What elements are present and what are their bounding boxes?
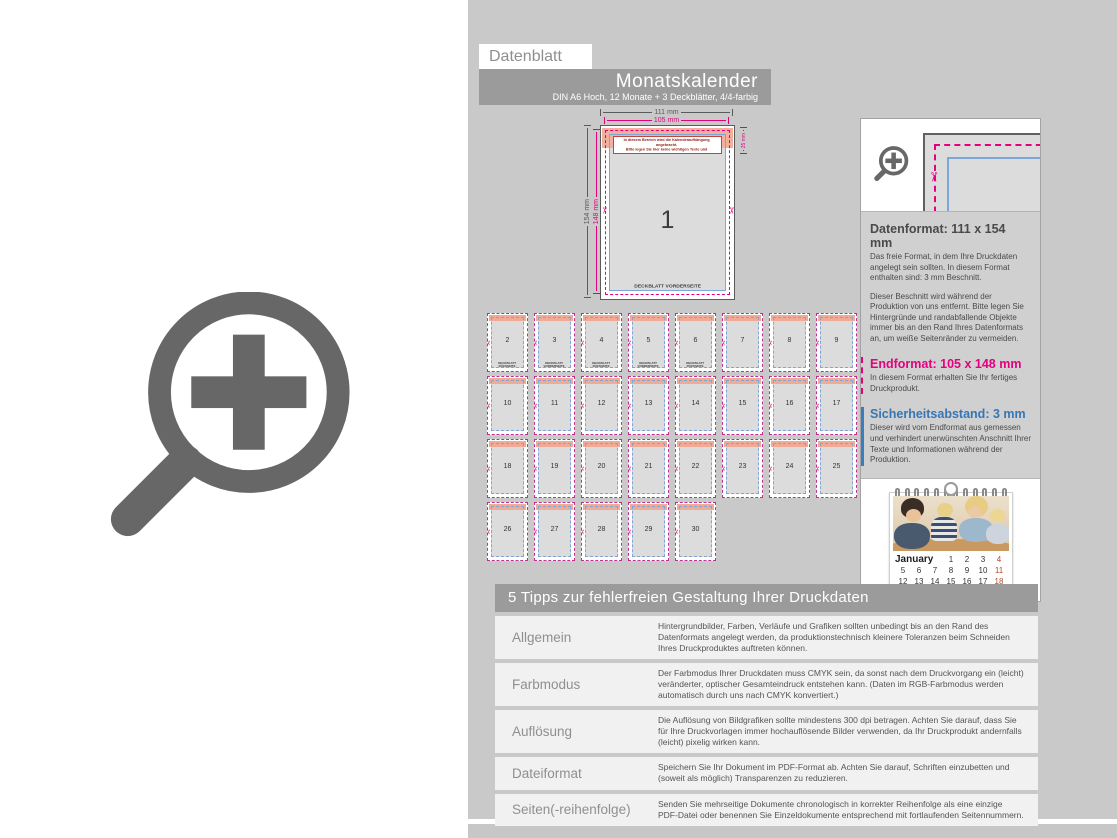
page-tile: ✂ 2 DECKBLATT RÜCKSEITE [487, 313, 528, 372]
day-cell: 8 [943, 565, 959, 576]
wire-loop [924, 488, 929, 496]
format-diagram: 111 mm 105 mm 154 mm 148 mm 25 mm ✂ ✂ In… [583, 108, 778, 308]
page-tile: ✂ 4 DECKBLATT RÜCKSEITE [581, 313, 622, 372]
page-tile: ✂ 21 [628, 439, 669, 498]
page-tile: ✂ 7 [722, 313, 763, 372]
page-tile: ✂ 26 [487, 502, 528, 561]
tip-row: Seiten(-reihenfolge) Senden Sie mehrseit… [495, 794, 1038, 826]
datenformat-section: Datenformat: 111 x 154 mm Das freie Form… [870, 222, 1031, 344]
wire-loop [973, 488, 978, 496]
day-cell: 1 [943, 554, 959, 565]
tip-label: Auflösung [495, 724, 658, 739]
day-cell: 4 [991, 554, 1007, 565]
wire-loop [895, 488, 900, 496]
endformat-section: Endformat: 105 x 148 mm In diesem Format… [861, 357, 1031, 394]
footer-bar [468, 824, 1117, 838]
product-photo-box: January123456789101112131415161718 [861, 478, 1040, 601]
wire-loop [963, 488, 968, 496]
endformat-text: In diesem Format erhalten Sie Ihr fertig… [870, 373, 1031, 394]
page-tile: ✂ 20 [581, 439, 622, 498]
day-cell: 10 [975, 565, 991, 576]
wire-loop [905, 488, 910, 496]
datasheet-page: Datenblatt Monatskalender DIN A6 Hoch, 1… [0, 0, 1117, 838]
page-number: 10 [488, 400, 527, 407]
hanger-ring [944, 482, 958, 496]
page-number: 13 [629, 400, 668, 407]
tip-row: Farbmodus Der Farbmodus Ihrer Druckdaten… [495, 663, 1038, 706]
wire-loop [1002, 488, 1007, 496]
zoomed-corner-graphic: ✂ [917, 127, 1040, 211]
tip-row: Auflösung Die Auflösung von Bildgrafiken… [495, 710, 1038, 753]
format-descriptions: Datenformat: 111 x 154 mm Das freie Form… [861, 212, 1040, 478]
tip-text: Hintergrundbilder, Farben, Verläufe und … [658, 616, 1038, 659]
page-number: 18 [488, 463, 527, 470]
day-cell: 9 [959, 565, 975, 576]
endformat-title: Endformat: 105 x 148 mm [870, 357, 1031, 371]
binding-warning-line2: Bitte legen Sie hier keine wichtigen Tex… [626, 147, 707, 154]
day-cell: 7 [927, 565, 943, 576]
page-number: 25 [817, 463, 856, 470]
binding-warning-box: In diesem Bereich wird die Kalenderaufhä… [613, 136, 722, 154]
tip-label: Farbmodus [495, 677, 658, 692]
wire-loop [914, 488, 919, 496]
page-tile: ✂ 18 [487, 439, 528, 498]
page-number: 11 [535, 400, 574, 407]
tip-label: Dateiformat [495, 766, 658, 781]
page-label: DECKBLATT RÜCKSEITE [676, 352, 715, 369]
scissors-icon: ✂ [925, 172, 941, 183]
page-tile: ✂ 28 [581, 502, 622, 561]
tip-row: Allgemein Hintergrundbilder, Farben, Ver… [495, 616, 1038, 659]
page-number: 2 [488, 337, 527, 344]
page-number: 28 [582, 526, 621, 533]
page-label: DECKBLATT VORDERSEITE [601, 281, 734, 291]
page-label: DECKBLATT VORDERSEITE [535, 352, 574, 369]
page-number: 29 [629, 526, 668, 533]
page-number: 30 [676, 526, 715, 533]
tip-text: Die Auflösung von Bildgrafiken sollte mi… [658, 710, 1038, 753]
page-label: DECKBLATT RÜCKSEITE [488, 352, 527, 369]
datenformat-text2: Dieser Beschnitt wird während der Produk… [870, 292, 1031, 345]
datenblatt-tab: Datenblatt [479, 44, 592, 69]
page-number: 1 [601, 206, 734, 235]
day-cell: 2 [959, 554, 975, 565]
calendar-dates: January123456789101112131415161718 [895, 554, 1007, 587]
page-tile: ✂ 13 [628, 376, 669, 435]
calendar-week-row: January1234 [895, 554, 1007, 565]
page-tile: ✂ 24 [769, 439, 810, 498]
page-number: 16 [770, 400, 809, 407]
safety-edge [947, 157, 1040, 211]
corner-detail-box: ✂ [861, 119, 1040, 212]
page-number: 15 [723, 400, 762, 407]
tips-rows: Allgemein Hintergrundbilder, Farben, Ver… [495, 616, 1038, 826]
page-tile: ✂ 8 [769, 313, 810, 372]
page-label: DECKBLATT VORDERSEITE [629, 352, 668, 369]
day-cell: 11 [991, 565, 1007, 576]
page-number: 7 [723, 337, 762, 344]
page-number: 14 [676, 400, 715, 407]
page-number: 3 [535, 337, 574, 344]
page-tile: ✂ 22 [675, 439, 716, 498]
dim-datenformat-height: 154 mm [583, 125, 592, 298]
calendar-week-row: 567891011 [895, 565, 1007, 576]
month-label: January [895, 554, 943, 565]
format-info-panel: ✂ Datenformat: 111 x 154 mm Das freie Fo… [860, 118, 1041, 602]
datenformat-text1: Das freie Format, in dem Ihre Druckdaten… [870, 252, 1031, 284]
page-number: 26 [488, 526, 527, 533]
datenformat-title: Datenformat: 111 x 154 mm [870, 222, 1031, 250]
binding-warning-line1: In diesem Bereich wird die Kalenderaufhä… [624, 138, 710, 147]
zoom-plus-icon [872, 146, 909, 183]
tip-text: Der Farbmodus Ihrer Druckdaten muss CMYK… [658, 663, 1038, 706]
page-tile: ✂ 12 [581, 376, 622, 435]
dim-endformat-width: 105 mm [604, 116, 729, 125]
product-titlebar: Monatskalender DIN A6 Hoch, 12 Monate + … [479, 69, 771, 105]
product-title: Monatskalender [479, 72, 758, 92]
sicherheitsabstand-section: Sicherheitsabstand: 3 mm Dieser wird vom… [861, 407, 1031, 465]
day-cell: 6 [911, 565, 927, 576]
product-subtitle: DIN A6 Hoch, 12 Monate + 3 Deckblätter, … [479, 92, 758, 103]
wire-loop [992, 488, 997, 496]
wire-loop [934, 488, 939, 496]
calendar-preview: January123456789101112131415161718 [889, 492, 1013, 591]
page-tile: ✂ 3 DECKBLATT VORDERSEITE [534, 313, 575, 372]
page-tile: ✂ 9 [816, 313, 857, 372]
pages-grid: ✂ 2 DECKBLATT RÜCKSEITE ✂ 3 DECKBLATT VO… [487, 313, 858, 561]
page-tile: ✂ 29 [628, 502, 669, 561]
page-tile: ✂ 5 DECKBLATT VORDERSEITE [628, 313, 669, 372]
page-number: 17 [817, 400, 856, 407]
page-number: 6 [676, 337, 715, 344]
page-number: 5 [629, 337, 668, 344]
page-number: 27 [535, 526, 574, 533]
day-cell: 5 [895, 565, 911, 576]
page-number: 20 [582, 463, 621, 470]
page-number: 19 [535, 463, 574, 470]
tip-label: Allgemein [495, 630, 658, 645]
page-number: 23 [723, 463, 762, 470]
page-number: 8 [770, 337, 809, 344]
page-number: 9 [817, 337, 856, 344]
wire-loop [982, 488, 987, 496]
tip-row: Dateiformat Speichern Sie Ihr Dokument i… [495, 757, 1038, 789]
page-number: 4 [582, 337, 621, 344]
page-number: 12 [582, 400, 621, 407]
tip-text: Senden Sie mehrseitige Dokumente chronol… [658, 794, 1038, 826]
cover-page-diagram: ✂ ✂ In diesem Bereich wird die Kalendera… [600, 125, 735, 300]
page-tile: ✂ 19 [534, 439, 575, 498]
page-tile: ✂ 6 DECKBLATT RÜCKSEITE [675, 313, 716, 372]
tips-table: 5 Tipps zur fehlerfreien Gestaltung Ihre… [495, 584, 1038, 826]
zoom-plus-icon [98, 292, 356, 544]
tip-label: Seiten(-reihenfolge) [495, 802, 658, 817]
page-tile: ✂ 27 [534, 502, 575, 561]
sicherheitsabstand-title: Sicherheitsabstand: 3 mm [870, 407, 1031, 421]
page-tile: ✂ 16 [769, 376, 810, 435]
tip-text: Speichern Sie Ihr Dokument im PDF-Format… [658, 757, 1038, 789]
page-number: 22 [676, 463, 715, 470]
page-number: 24 [770, 463, 809, 470]
page-tile: ✂ 17 [816, 376, 857, 435]
page-tile: ✂ 25 [816, 439, 857, 498]
page-tile: ✂ 11 [534, 376, 575, 435]
page-tile: ✂ 14 [675, 376, 716, 435]
page-tile: ✂ 23 [722, 439, 763, 498]
dim-binding-zone: 25 mm [739, 127, 748, 154]
page-number: 21 [629, 463, 668, 470]
day-cell: 3 [975, 554, 991, 565]
sicherheitsabstand-text: Dieser wird vom Endformat aus gemessen u… [870, 423, 1031, 465]
page-tile: ✂ 10 [487, 376, 528, 435]
page-tile: ✂ 15 [722, 376, 763, 435]
page-label: DECKBLATT RÜCKSEITE [582, 352, 621, 369]
family-photo [893, 496, 1009, 551]
tips-header: 5 Tipps zur fehlerfreien Gestaltung Ihre… [495, 584, 1038, 612]
page-tile: ✂ 30 [675, 502, 716, 561]
